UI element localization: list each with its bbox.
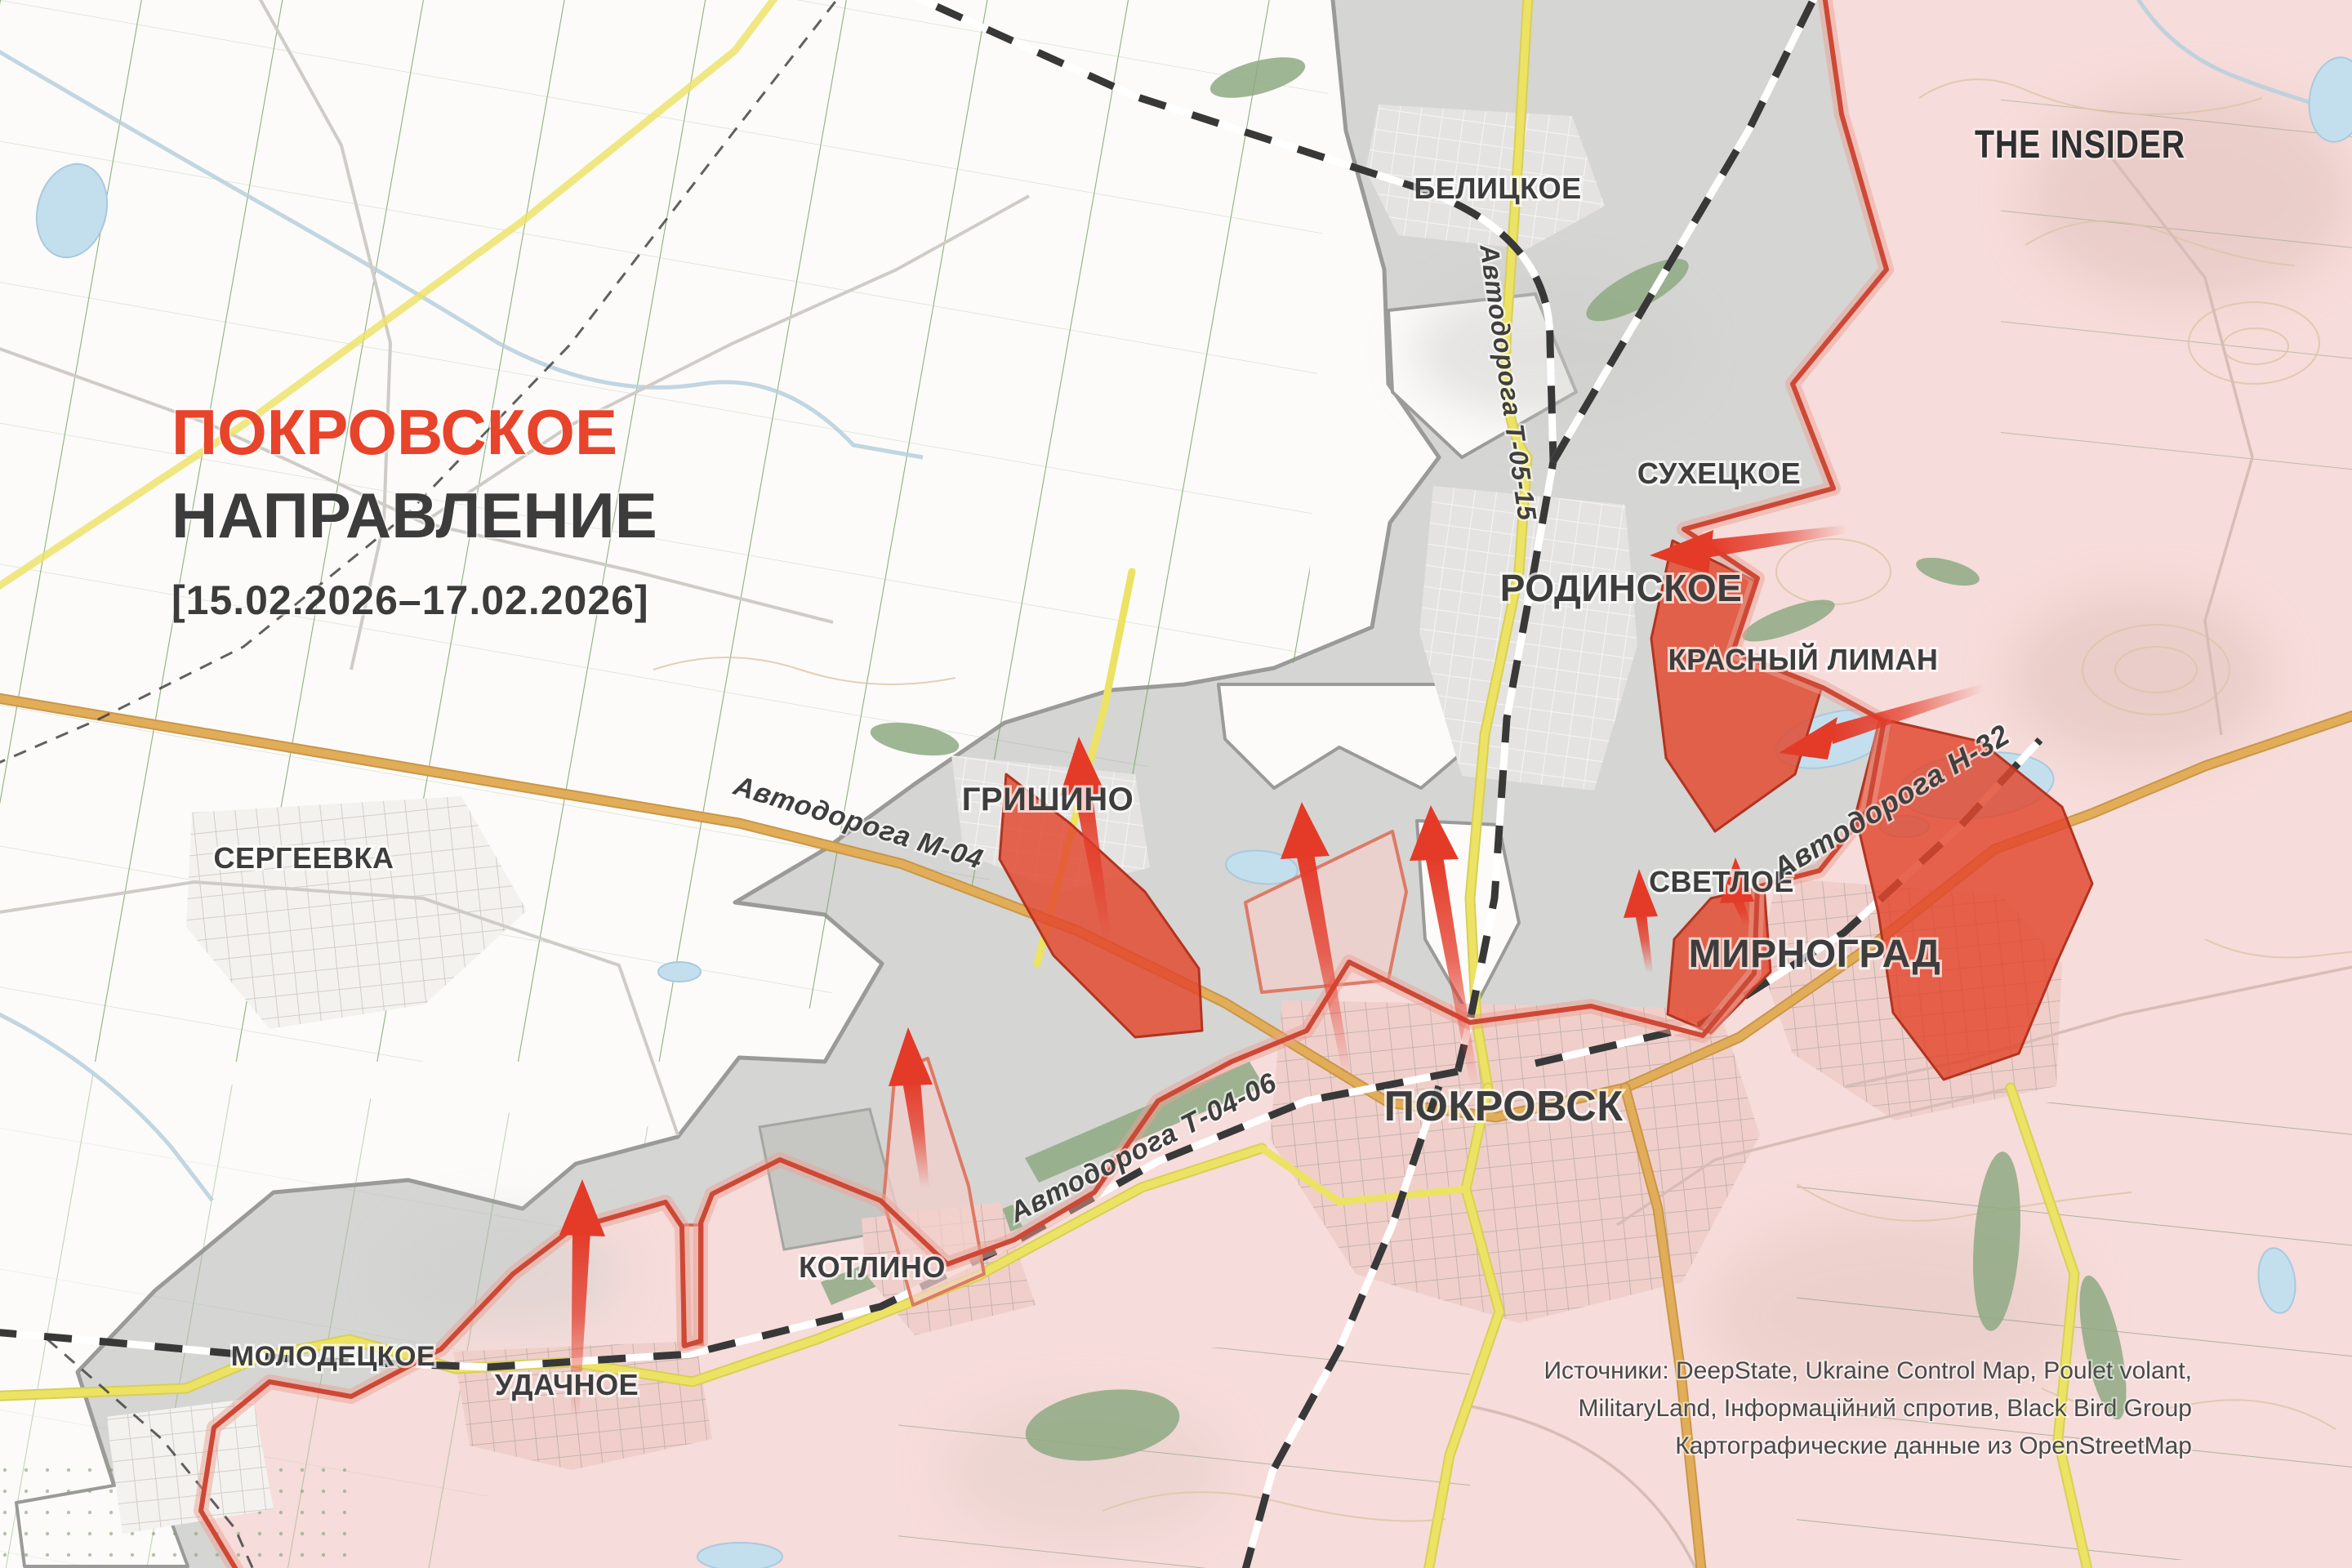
- page-title: ПОКРОВСКОЕ: [171, 396, 617, 468]
- brand-logo: THE INSIDER: [1975, 123, 2185, 167]
- label-svetloe: СВЕТЛОЕ: [1649, 865, 1794, 898]
- label-mirnograd: МИРНОГРАД: [1689, 933, 1941, 976]
- title-block: ПОКРОВСКОЕ НАПРАВЛЕНИЕ [15.02.2026–17.02…: [171, 396, 657, 623]
- sources-line2: MilitaryLand, Інформаційний спротив, Bla…: [1578, 1395, 2192, 1422]
- label-sergeevka: СЕРГЕЕВКА: [214, 841, 394, 875]
- date-range: [15.02.2026–17.02.2026]: [171, 577, 649, 623]
- pond: [658, 962, 701, 982]
- label-kotlino: КОТЛИНО: [799, 1250, 946, 1284]
- sources-line1: Источники: DeepState, Ukraine Control Ma…: [1543, 1357, 2192, 1384]
- map-canvas: БЕЛИЦКОЕ СУХЕЦКОЕ РОДИНСКОЕ КРАСНЫЙ ЛИМА…: [0, 0, 2352, 1568]
- label-krasny-liman: КРАСНЫЙ ЛИМАН: [1668, 642, 1939, 676]
- label-molodetskoe: МОЛОДЕЦКОЕ: [231, 1341, 435, 1372]
- label-udachnoe: УДАЧНОЕ: [495, 1368, 639, 1401]
- label-grishino: ГРИШИНО: [962, 782, 1134, 817]
- label-sukhetskoe: СУХЕЦКОЕ: [1637, 457, 1801, 490]
- field-grid-ru-s: [898, 1347, 1470, 1568]
- label-pokrovsk: ПОКРОВСК: [1384, 1083, 1624, 1130]
- hillshade: [2009, 592, 2270, 764]
- sources-line3: Картографические данные из OpenStreetMap: [1675, 1432, 2192, 1459]
- label-rodinskoe: РОДИНСКОЕ: [1500, 567, 1743, 609]
- page-subtitle: НАПРАВЛЕНИЕ: [171, 479, 657, 551]
- label-belitskoe: БЕЛИЦКОЕ: [1414, 171, 1581, 205]
- pond: [697, 1543, 782, 1568]
